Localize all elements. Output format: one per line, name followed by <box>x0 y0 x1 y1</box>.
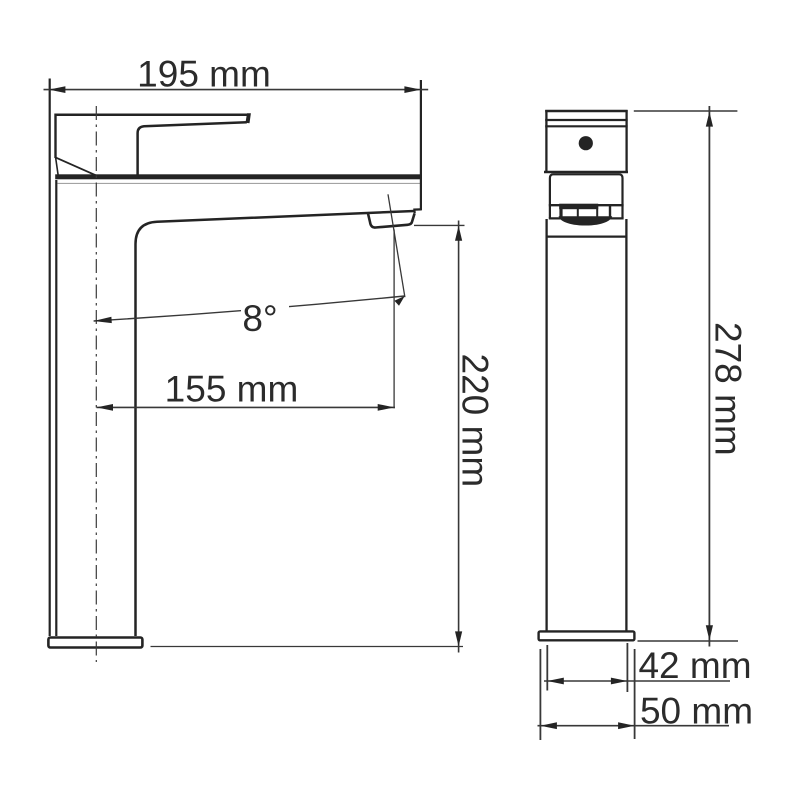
svg-text:195 mm: 195 mm <box>137 54 271 95</box>
svg-text:8°: 8° <box>242 298 277 339</box>
svg-text:220 mm: 220 mm <box>455 354 496 488</box>
svg-text:42 mm: 42 mm <box>638 645 751 686</box>
svg-text:155 mm: 155 mm <box>165 368 299 409</box>
svg-text:50 mm: 50 mm <box>640 691 753 732</box>
svg-text:278 mm: 278 mm <box>708 322 749 456</box>
